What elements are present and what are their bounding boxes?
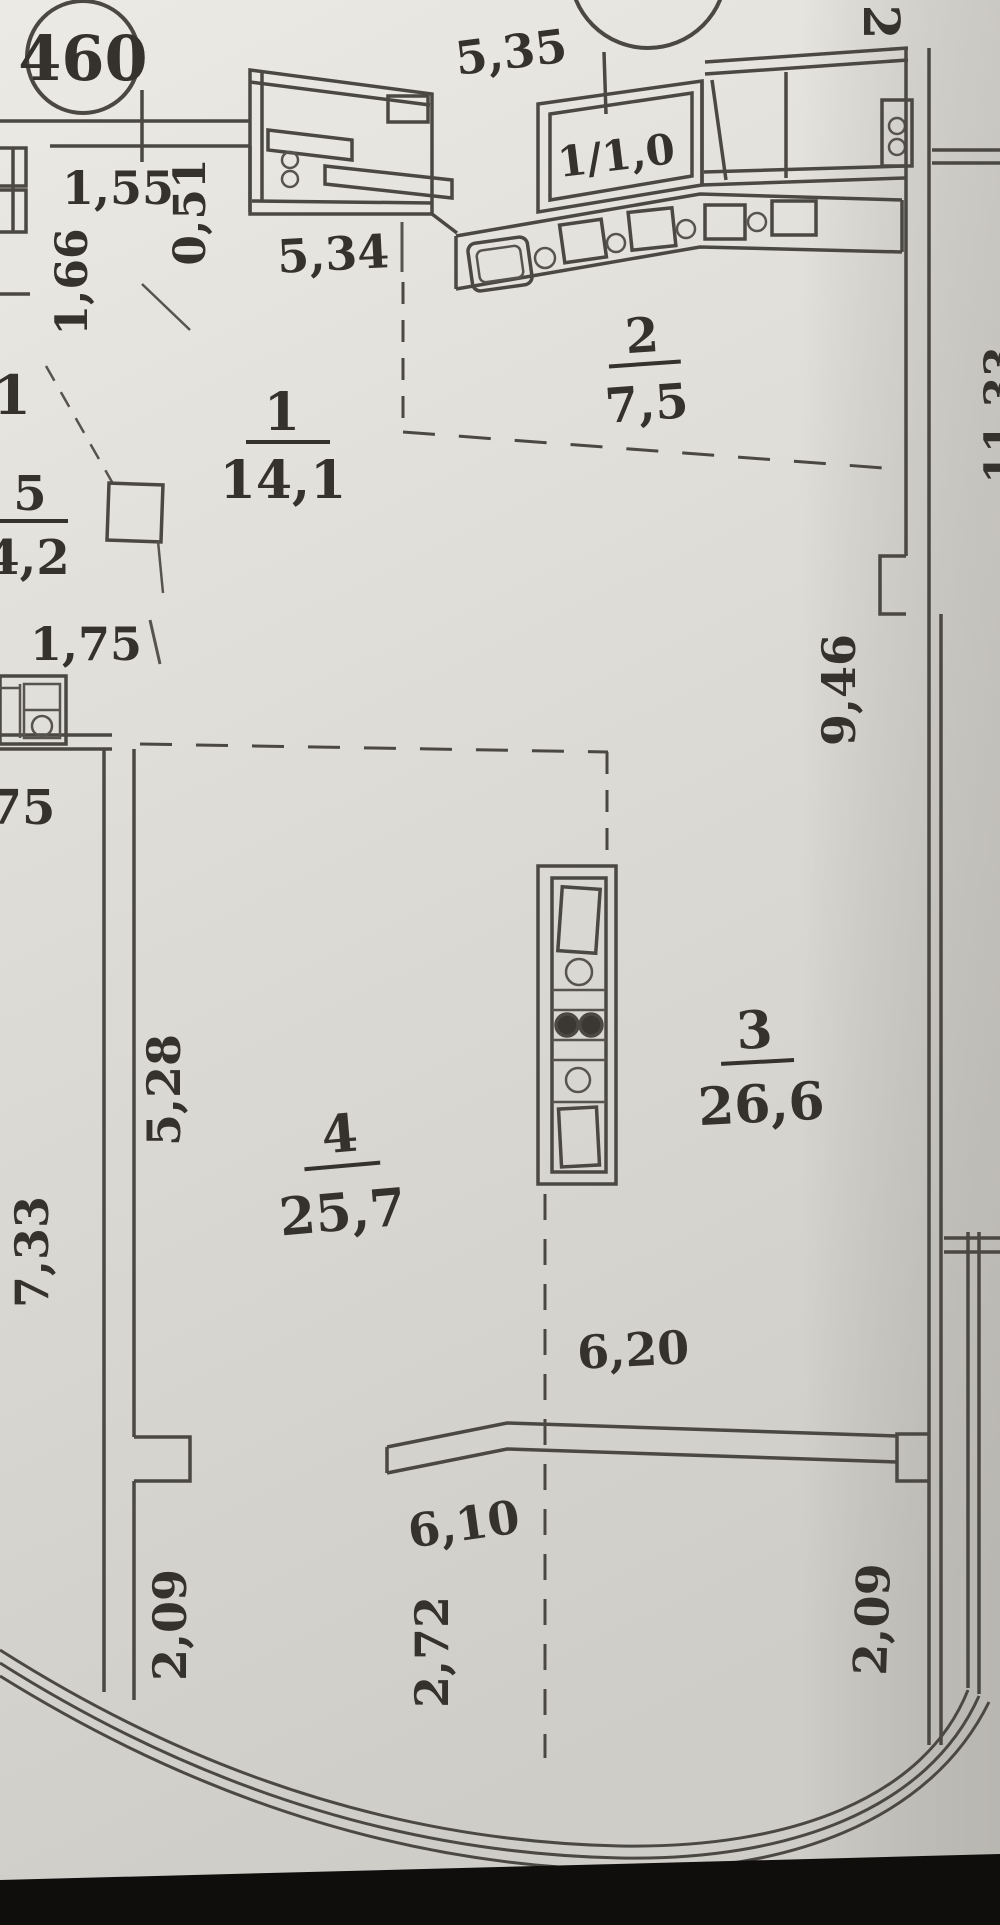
apartment-number-badge: 460 xyxy=(18,22,147,95)
dim-5-28: 5,28 xyxy=(137,1034,191,1146)
room-4-area: 25,7 xyxy=(277,1177,408,1249)
dim-2-09-left: 2,09 xyxy=(143,1569,197,1681)
dim-7-33: 7,33 xyxy=(5,1196,59,1308)
dim-2-72: 2,72 xyxy=(405,1596,459,1708)
room-5-number: 5 xyxy=(13,466,46,522)
dim-2-09-right: 2,09 xyxy=(843,1563,901,1677)
dim-11-33: 11,33 xyxy=(976,346,1000,484)
dim-1-55: 1,55 xyxy=(62,161,174,215)
dim-0-51: 0,51 xyxy=(165,158,216,265)
room-1-number: 1 xyxy=(264,382,300,443)
room-3-number: 3 xyxy=(735,999,774,1062)
apartment-number-badge-2: 115 xyxy=(590,0,707,10)
floorplan-svg: 460 115 5,35 1/1,0 2 1,55 0,51 1,66 5,34… xyxy=(0,0,1000,1925)
dim-1-75: 1,75 xyxy=(30,617,142,671)
room-2-area: 7,5 xyxy=(603,373,690,435)
neighbor-dim-1: 1 xyxy=(0,363,31,427)
room-5-area: 4,2 xyxy=(0,530,70,586)
dim-1-66: 1,66 xyxy=(47,228,98,335)
appliance-burner-2 xyxy=(580,1014,602,1036)
room-3-area: 26,6 xyxy=(696,1071,826,1139)
appliance-burner-1 xyxy=(556,1014,578,1036)
floorplan-photo: 460 115 5,35 1/1,0 2 1,55 0,51 1,66 5,34… xyxy=(0,0,1000,1925)
dim-5-34: 5,34 xyxy=(276,224,391,284)
room-1-area: 14,1 xyxy=(220,450,347,511)
room-4-number: 4 xyxy=(319,1103,360,1167)
neighbor-dim-75: 75 xyxy=(0,780,55,836)
dim-9-46: 9,46 xyxy=(812,634,866,746)
dim-6-20: 6,20 xyxy=(576,1320,691,1380)
room-2-number: 2 xyxy=(623,307,660,365)
neighbor-dim-2: 2 xyxy=(852,5,911,40)
